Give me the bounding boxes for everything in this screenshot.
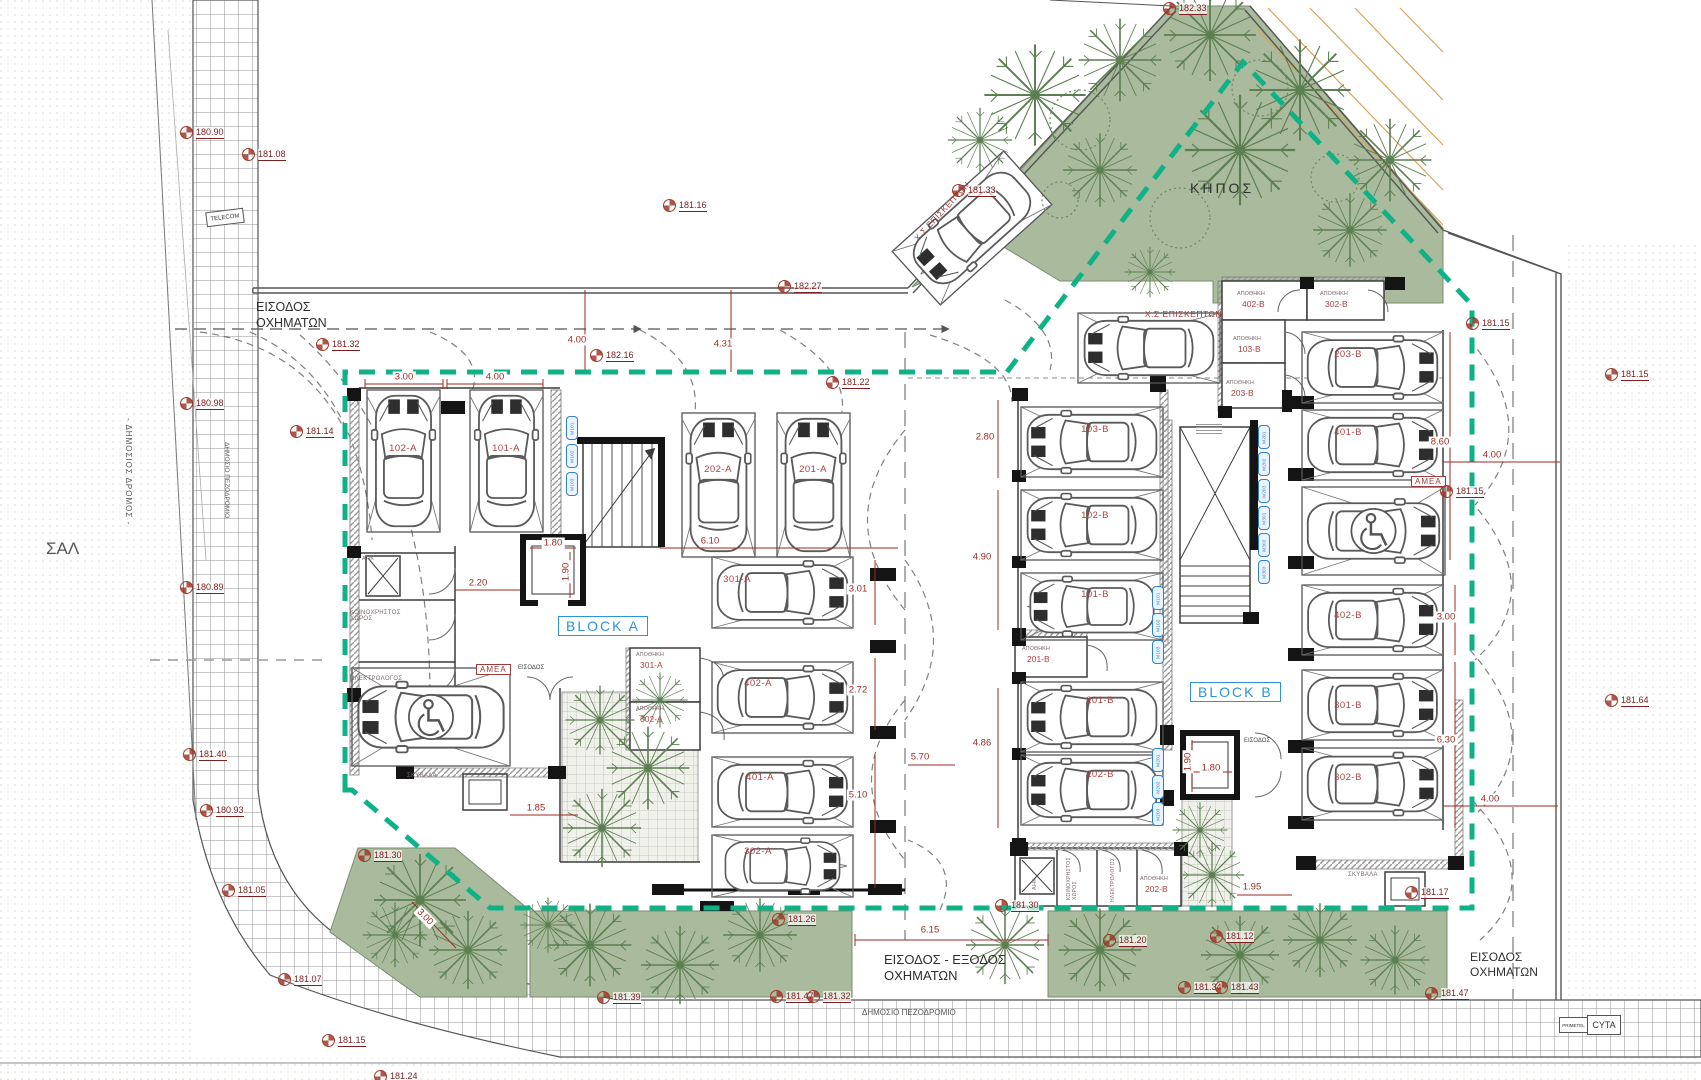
visitor-parking-label: Χ.Σ ΕΠΙΣΚΕΠΤΩΝ: [1118, 309, 1222, 319]
benchmark-icon: [322, 1034, 335, 1047]
moto-space-id: M102: [570, 450, 575, 462]
dim-label: 6.10: [699, 536, 722, 547]
elevation-marker: 181.15: [1605, 368, 1649, 381]
elevation-value: 180.93: [216, 805, 244, 817]
moto-space-id: M201: [1156, 754, 1161, 766]
cyta-box: CYTA: [1587, 1015, 1621, 1035]
elevation-marker: 181.22: [826, 376, 870, 389]
parking-space-id: 203-B: [1316, 349, 1380, 360]
storage-label: ΑΠΟΘΗΚΗ: [1022, 646, 1050, 652]
elevation-value: 181.07: [294, 974, 322, 986]
elevation-marker: 180.89: [180, 581, 224, 594]
dim-label: 1.80: [542, 538, 565, 549]
benchmark-icon: [242, 148, 255, 161]
benchmark-icon: [1178, 981, 1191, 994]
elevation-value: 181.12: [1226, 931, 1254, 943]
dim-label: 2.20: [467, 578, 490, 589]
parking-space-id: 101-A: [474, 443, 538, 454]
benchmark-icon: [807, 990, 820, 1003]
elevation-value: 181.14: [306, 426, 334, 438]
elevation-marker: 181.15: [1466, 317, 1510, 330]
room-common-a: ΚΟΙΝΟΧΡΗΣΤΟΣΧΩΡΟΣ: [350, 610, 401, 622]
benchmark-icon: [663, 199, 676, 212]
amea-label-a: ΑΜΕΑ: [476, 664, 511, 675]
dim-label: 4.00: [1481, 450, 1504, 461]
storage-id: 302-A: [640, 714, 663, 724]
storage-label: ΑΠΟΘΗΚΗ: [1140, 876, 1168, 882]
dim-label: 1.90: [561, 561, 572, 584]
elevation-value: 180.98: [196, 398, 224, 410]
moto-space-chip: M101: [1152, 586, 1164, 610]
benchmark-icon: [374, 1070, 387, 1080]
parking-space-id: 301-A: [705, 574, 769, 585]
elevation-marker: 181.32: [316, 338, 360, 351]
moto-space-id: M303: [1262, 566, 1267, 578]
elevation-value: 181.40: [199, 749, 227, 761]
moto-space-id: M301: [1262, 512, 1267, 524]
benchmark-icon: [278, 973, 291, 986]
parking-space-id: 402-B: [1316, 610, 1380, 621]
benchmark-icon: [200, 804, 213, 817]
moto-space-chip: M102: [566, 444, 578, 468]
parking-space-id: 102-B: [1063, 510, 1127, 521]
room-electrician-b: ΗΛΕΚΤΡΟΛΟΓΟΣ: [1110, 858, 1116, 902]
moto-space-chip: M302: [1258, 533, 1270, 557]
moto-space-chip: M203: [1152, 802, 1164, 826]
elevation-value: 181.17: [1421, 887, 1449, 899]
storage-id: 201-B: [1027, 654, 1050, 664]
dim-label: 4.00: [1479, 794, 1502, 805]
moto-space-id: M103: [570, 478, 575, 490]
parking-space-id: 401-A: [728, 772, 792, 783]
dim-label: 3.00: [393, 372, 416, 383]
moto-space-id: M201: [1262, 431, 1267, 443]
elevation-marker: 181.33: [952, 184, 996, 197]
benchmark-icon: [183, 748, 196, 761]
public-road-label: - ΔΗΜΟΣΙΟΣ ΔΡΟΜΟΣ -: [123, 418, 133, 525]
block-a-label: BLOCK A: [558, 616, 648, 636]
benchmark-icon: [290, 425, 303, 438]
entrance-exit-label: ΕΙΣΟΔΟΣ - ΕΞΟΔΟΣΟΧΗΜΑΤΩΝ: [884, 952, 1006, 985]
storage-label: ΑΠΟΘΗΚΗ: [636, 706, 664, 712]
entrance-top-label: ΕΙΣΟΔΟΣΟΧΗΜΑΤΩΝ: [256, 300, 327, 331]
elevation-marker: 181.43: [1215, 981, 1259, 994]
elevation-marker: 181.24: [374, 1070, 418, 1080]
benchmark-icon: [1605, 694, 1618, 707]
elevation-marker: 181.07: [278, 973, 322, 986]
elevation-marker: 181.16: [663, 199, 707, 212]
elevation-marker: 181.30: [995, 899, 1039, 912]
moto-space-id: M203: [1156, 808, 1161, 820]
elevation-value: 182.27: [794, 281, 822, 293]
benchmark-icon: [1425, 987, 1438, 1000]
elevation-value: 180.90: [196, 127, 224, 139]
moto-space-id: M302: [1262, 539, 1267, 551]
dim-label: 6.30: [1435, 735, 1458, 746]
elevation-marker: 181.47: [1425, 987, 1469, 1000]
parking-space-id: 401-B: [1316, 427, 1380, 438]
elevation-marker: 180.90: [180, 126, 224, 139]
dim-label: 4.90: [971, 552, 994, 563]
moto-space-chip: M201: [1152, 748, 1164, 772]
elevation-value: 180.89: [196, 582, 224, 594]
parking-space-id: 201-B: [1068, 695, 1132, 706]
dim-label: 6.15: [919, 925, 942, 936]
benchmark-icon: [222, 884, 235, 897]
storage-label: ΑΠΟΘΗΚΗ: [1320, 291, 1348, 297]
benchmark-icon: [1103, 934, 1116, 947]
moto-space-id: M203: [1262, 485, 1267, 497]
parking-space-id: 302-A: [726, 846, 790, 857]
elevation-value: 182.33: [1179, 3, 1207, 15]
dim-label: 3.00: [1435, 612, 1458, 623]
elevation-marker: 181.15: [322, 1034, 366, 1047]
room-electrician-a: ΗΛΕΚΤΡΟΛΟΓΟΣ: [350, 676, 402, 682]
elevation-value: 181.20: [1119, 935, 1147, 947]
moto-space-id: M202: [1262, 458, 1267, 470]
benchmark-icon: [1605, 368, 1618, 381]
elevation-value: 181.15: [1456, 486, 1484, 498]
moto-space-chip: M101: [566, 416, 578, 440]
room-ahk-b: ΑΗΚ: [1032, 878, 1038, 890]
garden-label: ΚΗΠΟΣ: [1190, 180, 1254, 198]
moto-space-chip: M103: [1152, 640, 1164, 664]
elevation-value: 181.26: [788, 914, 816, 926]
parking-space-id: 301-B: [1316, 700, 1380, 711]
moto-space-id: M101: [570, 422, 575, 434]
storage-label: ΑΠΟΘΗΚΗ: [1233, 336, 1261, 342]
elevation-marker: 180.98: [180, 397, 224, 410]
benchmark-icon: [316, 338, 329, 351]
elevation-marker: 181.12: [1210, 930, 1254, 943]
elevation-value: 181.30: [374, 850, 402, 862]
elevation-value: 181.47: [1441, 988, 1469, 1000]
dim-label: 8.60: [1429, 437, 1452, 448]
elevation-value: 181.30: [1011, 900, 1039, 912]
site-plan-drawing: [0, 0, 1701, 1080]
elevation-value: 181.32: [332, 339, 360, 351]
site-plan: ΕΙΣΟΔΟΣΟΧΗΜΑΤΩΝ ΚΗΠΟΣ ΣΑΛ - ΔΗΜΟΣΙΟΣ ΔΡΟ…: [0, 0, 1701, 1080]
dim-label: 4.00: [484, 372, 507, 383]
dim-label: 4.00: [566, 335, 589, 346]
moto-space-chip: M202: [1258, 452, 1270, 476]
dim-label: 2.80: [974, 432, 997, 443]
moto-space-id: M102: [1156, 619, 1161, 631]
elevation-value: 182.16: [606, 350, 634, 362]
parking-space-id: 101-B: [1063, 589, 1127, 600]
room-garbage-a: ΣΚΥΒΑΛΑ: [407, 773, 437, 779]
elevation-value: 181.15: [1482, 318, 1510, 330]
elevation-marker: 181.26: [772, 913, 816, 926]
fine-print-note: [1196, 422, 1222, 436]
elevation-value: 181.32: [823, 991, 851, 1003]
elevator-a-door: [538, 598, 568, 606]
elevation-value: 181.05: [238, 885, 266, 897]
dim-label: 3.01: [847, 584, 870, 595]
elevation-value: 181.33: [968, 185, 996, 197]
benchmark-icon: [358, 849, 371, 862]
benchmark-icon: [597, 991, 610, 1004]
parking-space-id: 202-B: [1068, 769, 1132, 780]
moto-space-id: M202: [1156, 781, 1161, 793]
moto-space-chip: M301: [1258, 506, 1270, 530]
benchmark-icon: [180, 126, 193, 139]
parking-space-id: 103-B: [1063, 424, 1127, 435]
elevation-value: 181.43: [1231, 982, 1259, 994]
benchmark-icon: [1440, 485, 1453, 498]
benchmark-icon: [1466, 317, 1479, 330]
sidewalk-bottom-label: ΔΗΜΟΣΙΟ ΠΕΖΟΔΡΟΜΙΟ: [862, 1008, 956, 1018]
elevation-marker: 181.64: [1605, 694, 1649, 707]
elevation-marker: 181.08: [242, 148, 286, 161]
elevation-marker: 181.40: [183, 748, 227, 761]
benchmark-icon: [952, 184, 965, 197]
dim-label: 4.31: [712, 339, 735, 350]
moto-space-chip: M202: [1152, 775, 1164, 799]
dim-label: 1.85: [525, 803, 548, 814]
moto-space-id: M103: [1156, 646, 1161, 658]
primetel-box: PRIMETEL: [1559, 1017, 1588, 1033]
elevation-value: 181.08: [258, 149, 286, 161]
dim-label: 4.86: [971, 738, 994, 749]
elevation-value: 181.64: [1621, 695, 1649, 707]
elevation-marker: 181.14: [290, 425, 334, 438]
storage-id: 302-B: [1325, 299, 1348, 309]
entrance-bottom-right-label: ΕΙΣΟΔΟΣΟΧΗΜΑΤΩΝ: [1470, 950, 1538, 980]
storage-id: 301-A: [640, 660, 663, 670]
benchmark-icon: [1405, 886, 1418, 899]
elevation-value: 181.15: [338, 1035, 366, 1047]
benchmark-icon: [995, 899, 1008, 912]
benchmark-icon: [772, 913, 785, 926]
elevation-value: 181.39: [613, 992, 641, 1004]
elevation-marker: 182.16: [590, 349, 634, 362]
elevation-value: 181.22: [842, 377, 870, 389]
benchmark-icon: [826, 376, 839, 389]
dim-label: 5.10: [847, 790, 870, 801]
elevation-marker: 181.32: [807, 990, 851, 1003]
elevation-marker: 182.27: [778, 280, 822, 293]
storage-id: 103-B: [1238, 344, 1261, 354]
block-a-entrance-label: ΕΙΣΟΔΟΣ: [518, 665, 544, 673]
sidewalk-left-label: ΔΗΜΟΣΙΟ ΠΕΖΟΔΡΟΜΙΟ: [222, 442, 230, 518]
elevation-marker: 181.39: [597, 991, 641, 1004]
room-common-b: ΚΟΙΝΟΧΡΗΣΤΟΣΧΩΡΟΣ: [1066, 857, 1078, 900]
elevation-value: 181.15: [1621, 369, 1649, 381]
parking-space-id: 302-B: [1316, 772, 1380, 783]
benchmark-icon: [1163, 2, 1176, 15]
dim-label: 1.90: [1183, 751, 1194, 774]
storage-label: ΑΠΟΘΗΚΗ: [1226, 380, 1254, 386]
benchmark-icon: [180, 397, 193, 410]
elevation-marker: 181.15: [1440, 485, 1484, 498]
moto-space-chip: M103: [566, 472, 578, 496]
storage-id: 402-B: [1242, 299, 1265, 309]
moto-space-chip: M203: [1258, 479, 1270, 503]
storage-id: 203-B: [1231, 388, 1254, 398]
benchmark-icon: [778, 280, 791, 293]
elevation-value: 181.16: [679, 200, 707, 212]
benchmark-icon: [770, 990, 783, 1003]
storage-label: ΑΠΟΘΗΚΗ: [636, 652, 664, 658]
moto-space-chip: M102: [1152, 613, 1164, 637]
moto-space-chip: M201: [1258, 425, 1270, 449]
road-name-label: ΣΑΛ: [46, 538, 79, 559]
benchmark-icon: [1210, 930, 1223, 943]
parking-space-id: 102-A: [371, 443, 435, 454]
benchmark-icon: [1215, 981, 1228, 994]
room-ahk-a: ΑΗΚ: [362, 556, 374, 562]
elevation-value: 181.24: [390, 1071, 418, 1080]
parking-space-id: 201-A: [781, 464, 845, 475]
dim-label: 1.95: [1241, 882, 1264, 893]
storage-label: ΑΠΟΘΗΚΗ: [1237, 291, 1265, 297]
elevation-marker: 180.93: [200, 804, 244, 817]
benchmark-icon: [180, 581, 193, 594]
room-garbage-b: ΣΚΥΒΑΛΑ: [1348, 872, 1378, 878]
moto-space-chip: M303: [1258, 560, 1270, 584]
elevation-marker: 181.30: [358, 849, 402, 862]
block-b-entrance-label: ΕΙΣΟΔΟΣ: [1244, 738, 1270, 746]
elevation-marker: 181.20: [1103, 934, 1147, 947]
dim-label: 2.72: [847, 685, 870, 696]
storage-id: 202-B: [1145, 884, 1168, 894]
block-b-label: BLOCK B: [1190, 682, 1281, 702]
elevation-marker: 181.05: [222, 884, 266, 897]
dim-label: 5.70: [909, 752, 932, 763]
dim-label: 1.80: [1200, 763, 1223, 774]
parking-space-id: 202-A: [686, 464, 750, 475]
moto-space-id: M101: [1156, 592, 1161, 604]
elevation-marker: 181.17: [1405, 886, 1449, 899]
parking-space-id: 402-A: [726, 678, 790, 689]
benchmark-icon: [590, 349, 603, 362]
elevation-marker: 182.33: [1163, 2, 1207, 15]
